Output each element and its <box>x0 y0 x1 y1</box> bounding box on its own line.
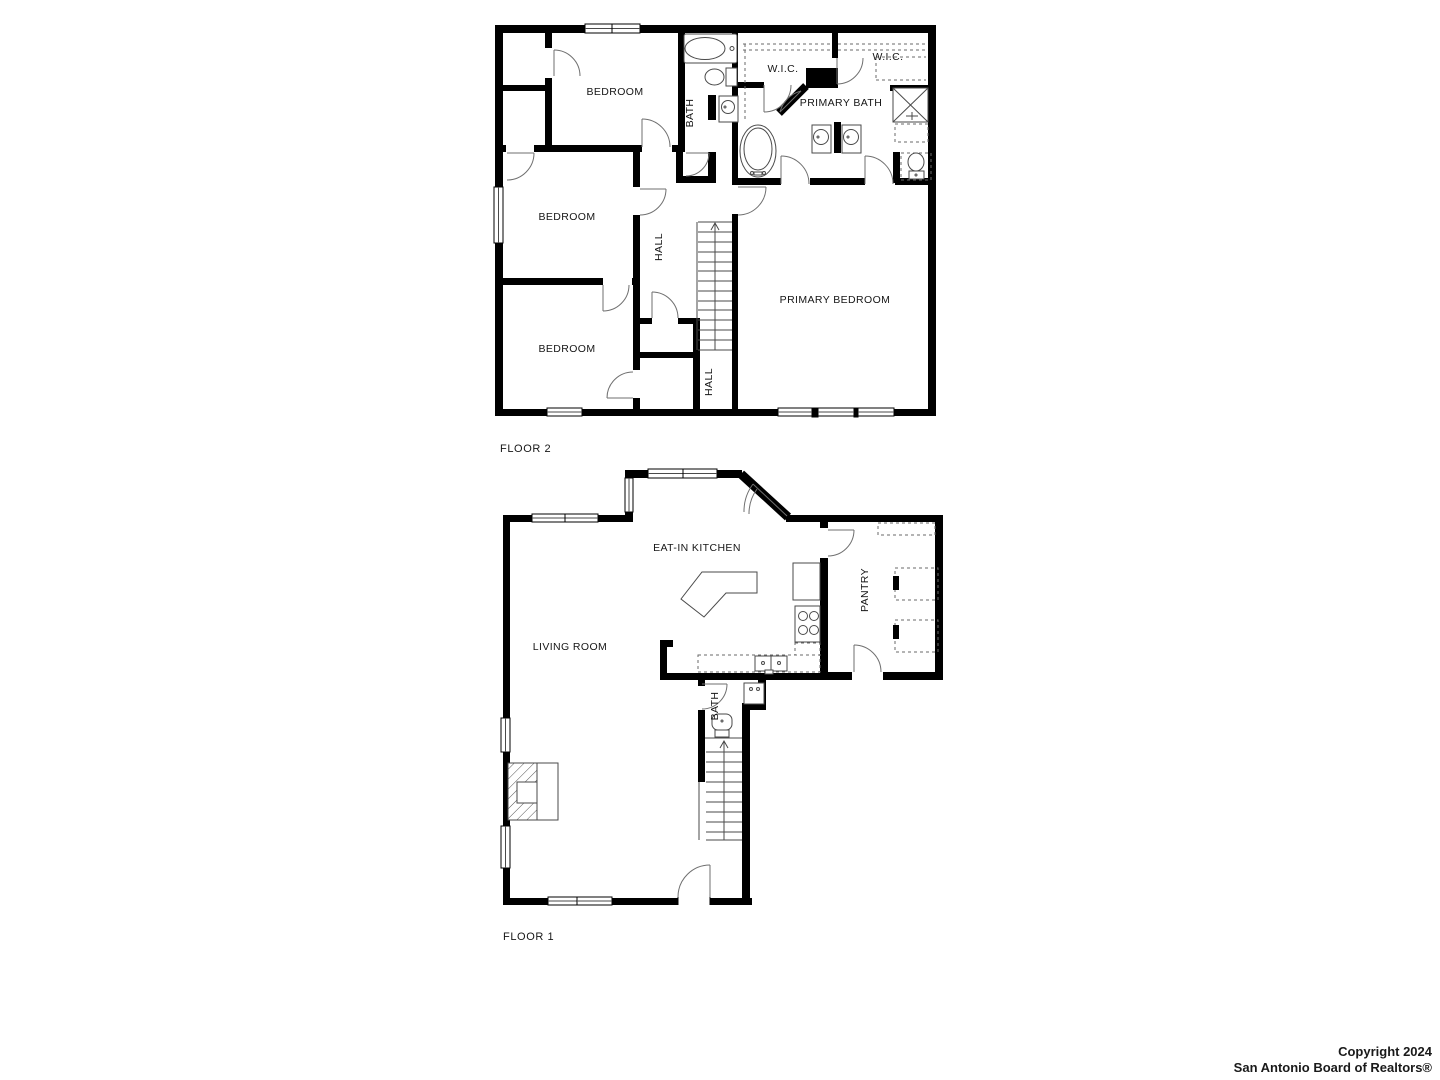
room-label-eat-in-kitchen: EAT-IN KITCHEN <box>653 542 741 554</box>
floor1-windows <box>501 469 717 905</box>
floor-plan-image: BEDROOM BEDROOM BEDROOM BATH HALL HALL W… <box>0 0 1440 1080</box>
room-label-bath-floor1: BATH <box>709 692 721 721</box>
window <box>532 514 598 522</box>
window <box>818 408 854 416</box>
door <box>607 372 633 398</box>
room-label-wic-right: W.I.C. <box>873 51 904 63</box>
counter-icon <box>793 563 820 600</box>
floor2-stairs <box>697 222 732 350</box>
copyright-notice: Copyright 2024 San Antonio Board of Real… <box>1234 1044 1432 1076</box>
window <box>858 408 894 416</box>
window <box>625 478 633 512</box>
door <box>554 50 580 76</box>
room-label-bath: BATH <box>684 99 696 128</box>
shower-icon <box>893 88 928 122</box>
room-label-bedroom-bottom: BEDROOM <box>538 343 595 355</box>
freestanding-tub-icon <box>740 125 776 177</box>
window <box>547 408 582 416</box>
counter-outline <box>795 643 820 655</box>
window <box>501 718 510 752</box>
room-label-wic-left: W.I.C. <box>768 63 799 75</box>
stove-icon <box>795 606 820 642</box>
door <box>865 156 893 184</box>
door <box>738 187 766 215</box>
copyright-line1: Copyright 2024 <box>1234 1044 1432 1060</box>
toilet-icon <box>705 68 737 86</box>
floor1-fixtures <box>508 523 938 820</box>
room-label-pantry: PANTRY <box>859 568 871 612</box>
window <box>585 24 640 33</box>
sink-icon <box>719 96 738 122</box>
door <box>652 292 678 318</box>
window <box>548 897 577 905</box>
door <box>507 153 534 180</box>
copyright-line2: San Antonio Board of Realtors® <box>1234 1060 1432 1076</box>
floor1-stairs <box>699 738 742 840</box>
floor2-plan: BEDROOM BEDROOM BEDROOM BATH HALL HALL W… <box>494 24 936 455</box>
floor2-label: FLOOR 2 <box>500 443 551 455</box>
window <box>577 897 612 905</box>
front-door <box>678 865 710 905</box>
door <box>686 153 709 176</box>
vanity-sink-icon <box>812 125 831 153</box>
floor1-label: FLOOR 1 <box>503 931 554 943</box>
bathtub-icon <box>684 34 737 63</box>
kitchen-sink-icon <box>755 656 787 674</box>
door <box>854 645 881 672</box>
floor1-plan: EAT-IN KITCHEN LIVING ROOM PANTRY BATH F… <box>501 469 943 943</box>
floor-plan-page: BEDROOM BEDROOM BEDROOM BATH HALL HALL W… <box>0 0 1440 1080</box>
pantry-shelves-icon <box>878 523 938 652</box>
window <box>648 469 717 478</box>
door <box>781 156 809 184</box>
vanity-sink-icon <box>842 125 861 153</box>
door <box>603 285 629 311</box>
door <box>780 91 801 112</box>
room-label-bedroom-mid: BEDROOM <box>538 211 595 223</box>
window <box>778 408 812 416</box>
bathroom-sink-icon <box>744 683 764 704</box>
room-label-primary-bedroom: PRIMARY BEDROOM <box>780 294 891 306</box>
kitchen-island-icon <box>681 572 757 617</box>
room-label-primary-bath: PRIMARY BATH <box>800 97 882 109</box>
window <box>501 826 510 868</box>
door <box>640 189 666 215</box>
window <box>494 187 503 243</box>
bench-icon <box>895 124 928 142</box>
room-label-hall-upper: HALL <box>653 233 665 261</box>
toilet-icon <box>901 153 931 180</box>
room-label-living-room: LIVING ROOM <box>533 641 607 653</box>
room-label-bedroom-top: BEDROOM <box>586 86 643 98</box>
door <box>642 119 670 147</box>
door <box>828 530 854 556</box>
room-label-hall-lower: HALL <box>703 368 715 396</box>
fireplace-icon <box>508 763 558 820</box>
door <box>837 58 863 84</box>
